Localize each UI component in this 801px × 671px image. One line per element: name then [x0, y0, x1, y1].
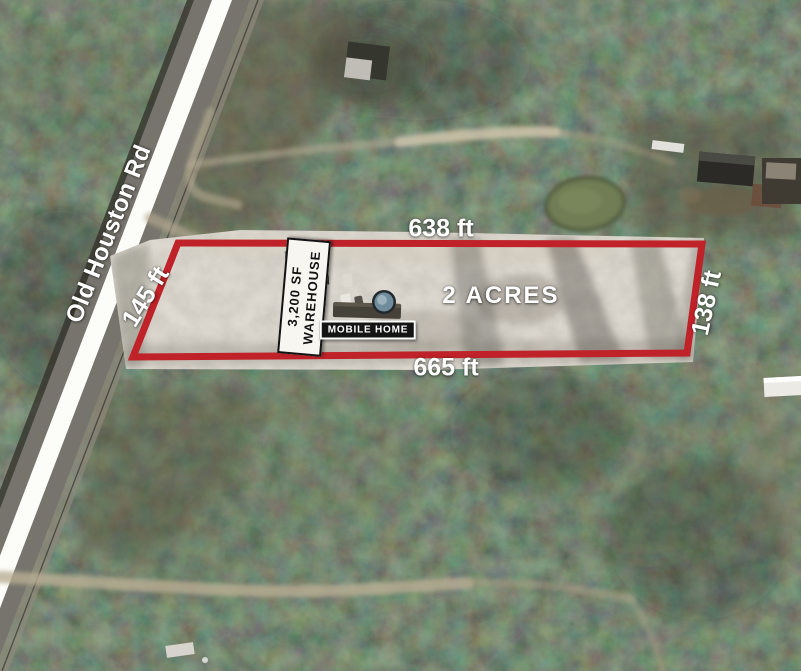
parcel-area-label: 2 ACRES: [442, 282, 559, 310]
mobile-home-label: MOBILE HOME: [320, 321, 416, 340]
parcel-dimension-top: 638 ft: [408, 215, 473, 244]
parcel-dimension-bottom: 665 ft: [413, 354, 478, 383]
building-bottom-right: [764, 376, 801, 397]
round-pool: [372, 290, 396, 314]
aerial-property-map: Old Houston Rd 145 ft 638 ft 665 ft 138 …: [0, 0, 801, 671]
house-structure: [344, 41, 390, 82]
